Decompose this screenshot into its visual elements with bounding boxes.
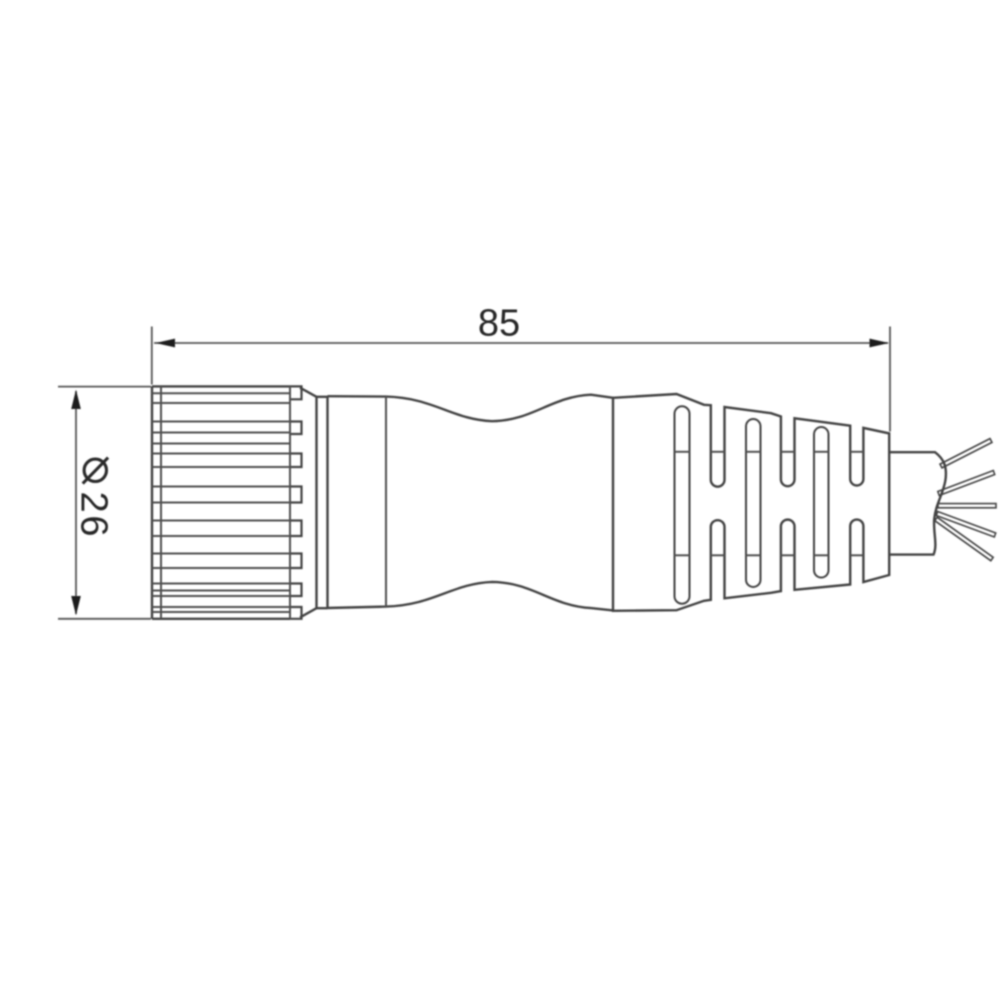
svg-text:85: 85 <box>478 303 520 345</box>
svg-text:26: 26 <box>73 492 115 540</box>
